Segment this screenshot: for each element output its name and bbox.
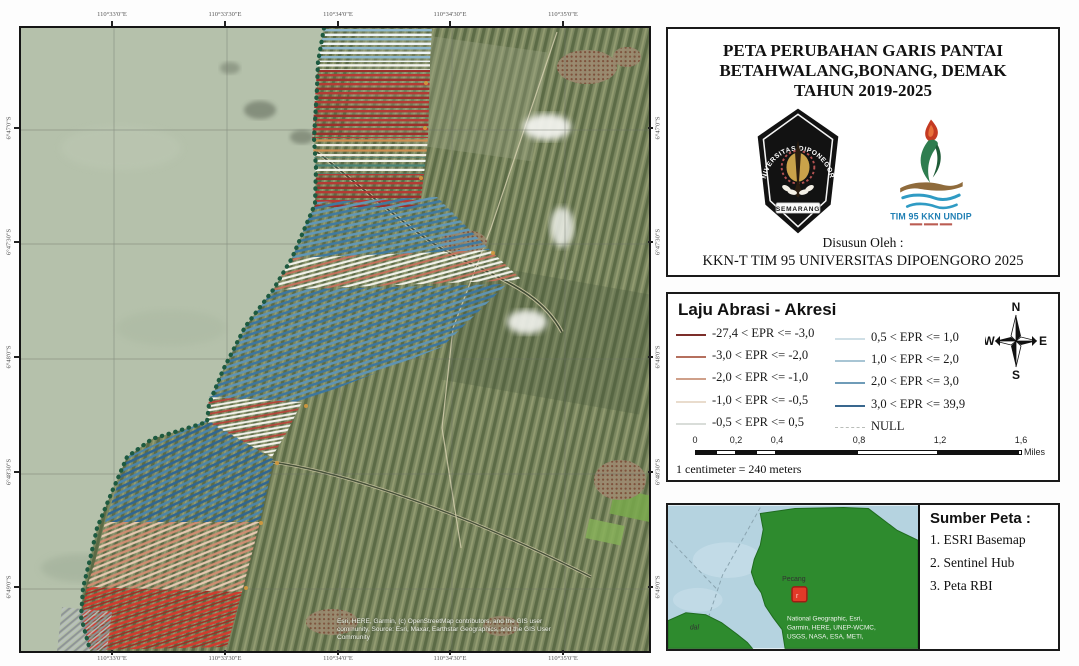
lat-tick: [648, 471, 653, 473]
lat-tick: [14, 586, 19, 588]
svg-text:W: W: [985, 334, 995, 348]
lat-label: 6°47'30"S: [6, 229, 13, 255]
svg-text:SEMARANG: SEMARANG: [776, 206, 820, 213]
lat-tick: [14, 471, 19, 473]
lat-label: 6°48'0"S: [655, 345, 662, 368]
lon-label: 110°33'30"E: [209, 655, 242, 662]
legend-heading: Laju Abrasi - Akresi: [678, 300, 836, 320]
lon-tick: [224, 21, 226, 26]
lat-label: 6°47'0"S: [6, 116, 13, 139]
legend-label: 0,5 < EPR <= 1,0: [871, 330, 959, 345]
map-sources: Sumber Peta : 1. ESRI Basemap 2. Sentine…: [920, 505, 1058, 649]
legend-swatch: [676, 334, 706, 336]
source-item: 3. Peta RBI: [930, 575, 1054, 596]
legend-label: -0,5 < EPR <= 0,5: [712, 415, 804, 430]
map-layout-sheet: Esri, HERE, Garmin, (c) OpenStreetMap co…: [0, 0, 1079, 666]
source-item: 2. Sentinel Hub: [930, 552, 1054, 573]
lon-label: 110°35'0"E: [548, 11, 578, 18]
lat-tick: [14, 127, 19, 129]
scale-note: 1 centimeter = 240 meters: [676, 462, 801, 477]
lat-tick: [14, 356, 19, 358]
lon-tick: [449, 21, 451, 26]
scale-number: 0,2: [730, 435, 743, 445]
lat-tick: [14, 241, 19, 243]
svg-text:N: N: [1012, 300, 1021, 314]
lat-label: 6°48'30"S: [6, 459, 13, 485]
lat-tick: [648, 586, 653, 588]
svg-text:E: E: [1039, 334, 1047, 348]
legend-panel: Laju Abrasi - Akresi -27,4 < EPR <= -3,0…: [666, 292, 1060, 482]
scale-number: 0,4: [771, 435, 784, 445]
legend-label: NULL: [871, 419, 904, 434]
cloud-shadow: [244, 101, 276, 119]
author-line: KKN-T TIM 95 UNIVERSITAS DIPOENGORO 2025: [668, 253, 1058, 270]
scale-number: 1,2: [934, 435, 947, 445]
lat-tick: [648, 241, 653, 243]
scale-number: 0,8: [853, 435, 866, 445]
study-area-marker: [792, 587, 807, 602]
lon-label: 110°35'0"E: [548, 655, 578, 662]
lon-tick: [562, 21, 564, 26]
legend-label: 1,0 < EPR <= 2,0: [871, 352, 959, 367]
cloud: [523, 114, 571, 140]
tim-logo-tagline: [910, 223, 952, 225]
legend-swatch: [835, 360, 865, 362]
svg-text:USGS, NASA, ESA, METI,: USGS, NASA, ESA, METI,: [787, 634, 864, 641]
legend-swatch: [835, 405, 865, 407]
svg-text:S: S: [1012, 368, 1020, 382]
lon-label: 110°34'30"E: [434, 11, 467, 18]
source-item: 1. ESRI Basemap: [930, 529, 1054, 550]
tim95-kkn-undip-logo: TIM 95 KKN UNDIP: [887, 115, 975, 233]
legend-label: -2,0 < EPR <= -1,0: [712, 370, 808, 385]
legend-label: 3,0 < EPR <= 39,9: [871, 397, 965, 412]
scale-number: 1,6: [1015, 435, 1028, 445]
compass-rose: N S W E: [985, 298, 1047, 382]
lat-label: 6°48'0"S: [6, 345, 13, 368]
abrasion-band: [312, 70, 430, 138]
lat-label: 6°47'30"S: [655, 229, 662, 255]
legend-swatch: [835, 382, 865, 384]
lon-label: 110°33'30"E: [209, 11, 242, 18]
legend-label: 2,0 < EPR <= 3,0: [871, 374, 959, 389]
legend-label: -1,0 < EPR <= -0,5: [712, 393, 808, 408]
legend-swatch: [835, 338, 865, 340]
scale-bar: [695, 450, 1022, 455]
svg-text:Garmin, HERE, UNEP-WCMC,: Garmin, HERE, UNEP-WCMC,: [787, 625, 876, 632]
satellite-map-canvas: [21, 28, 649, 651]
lon-tick: [337, 21, 339, 26]
lat-label: 6°49'0"S: [655, 575, 662, 598]
compass-star: [995, 315, 1037, 367]
map-title-line3: TAHUN 2019-2025: [668, 81, 1058, 101]
scale-number: 0: [692, 435, 697, 445]
legend-swatch: [676, 356, 706, 358]
lat-label: 6°48'30"S: [655, 459, 662, 485]
title-panel: PETA PERUBAHAN GARIS PANTAI BETAHWALANG,…: [666, 27, 1060, 277]
svg-text:TIM 95 KKN UNDIP: TIM 95 KKN UNDIP: [890, 212, 972, 222]
lon-label: 110°34'30"E: [434, 655, 467, 662]
undip-logo: UNIVERSITAS DIPONEGORO SEMARANG: [750, 107, 846, 235]
author-label: Disusun Oleh :: [668, 235, 1058, 251]
main-map: Esri, HERE, Garmin, (c) OpenStreetMap co…: [19, 26, 651, 653]
lon-label: 110°33'0"E: [97, 11, 127, 18]
logo-row: UNIVERSITAS DIPONEGORO SEMARANG: [668, 105, 1058, 235]
basemap-attribution: Esri, HERE, Garmin, (c) OpenStreetMap co…: [337, 618, 652, 642]
village-cluster: [557, 50, 617, 84]
legend-swatch: [676, 401, 706, 403]
lon-label: 110°33'0"E: [97, 655, 127, 662]
scale-unit: Miles: [1024, 447, 1045, 457]
inset-place-label: dal: [690, 625, 700, 632]
map-title-line2: BETAHWALANG,BONANG, DEMAK: [668, 61, 1058, 81]
legend-swatch-null: [835, 427, 865, 428]
lon-label: 110°34'0"E: [323, 11, 353, 18]
svg-text:National Geographic, Esri,: National Geographic, Esri,: [787, 616, 862, 623]
map-title-line1: PETA PERUBAHAN GARIS PANTAI: [668, 41, 1058, 61]
inset-panel: Pecang dal r National Geographic, Esri, …: [666, 503, 1060, 651]
inset-locator-map: Pecang dal r National Geographic, Esri, …: [668, 505, 920, 649]
lon-tick: [111, 21, 113, 26]
inset-place-label: Pecang: [782, 576, 806, 583]
lat-label: 6°47'0"S: [655, 116, 662, 139]
sources-heading: Sumber Peta :: [930, 510, 1054, 527]
legend-swatch: [676, 378, 706, 380]
lon-label: 110°34'0"E: [323, 655, 353, 662]
lat-tick: [648, 127, 653, 129]
legend-label: -3,0 < EPR <= -2,0: [712, 348, 808, 363]
lat-tick: [648, 356, 653, 358]
lat-label: 6°49'0"S: [6, 575, 13, 598]
legend-label: -27,4 < EPR <= -3,0: [712, 326, 814, 341]
legend-swatch: [676, 423, 706, 425]
